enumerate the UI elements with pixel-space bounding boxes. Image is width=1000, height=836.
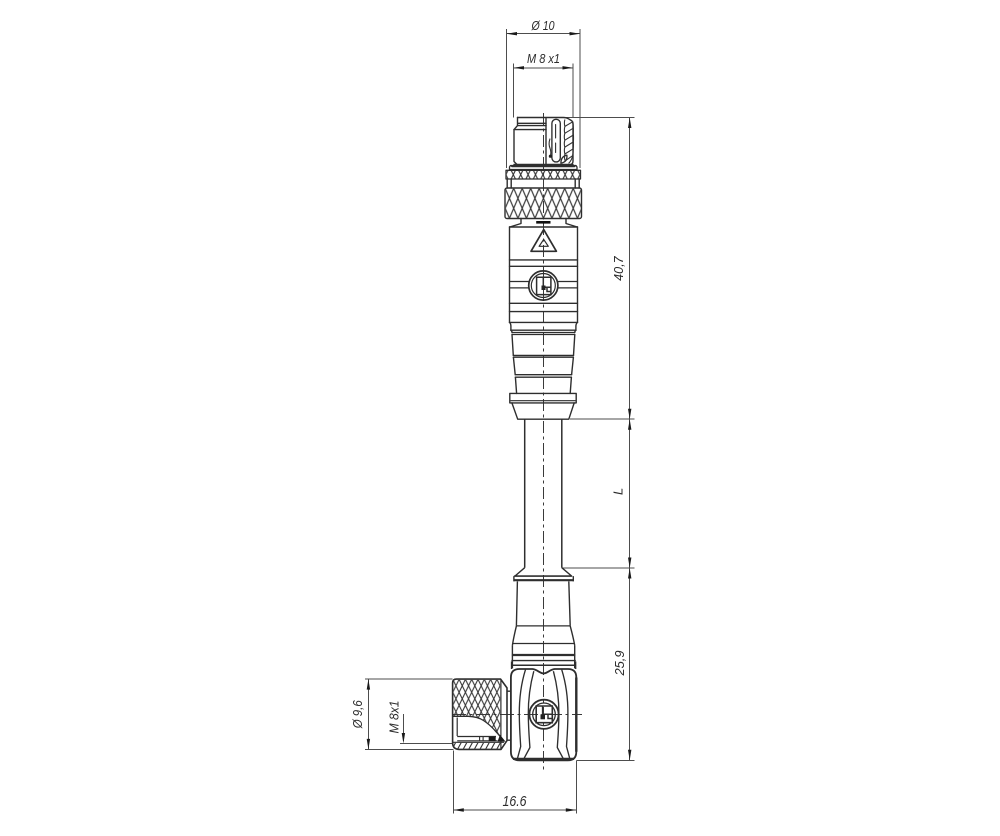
svg-text:M 8x1: M 8x1 [386,701,401,734]
svg-text:40,7: 40,7 [611,256,626,281]
svg-text:16.6: 16.6 [503,793,528,810]
svg-text:M 8 x1: M 8 x1 [527,51,560,66]
svg-text:Ø 9,6: Ø 9,6 [350,700,365,730]
svg-text:L: L [611,488,626,495]
svg-text:Ø 10: Ø 10 [531,18,555,33]
svg-text:25,9: 25,9 [612,651,627,677]
